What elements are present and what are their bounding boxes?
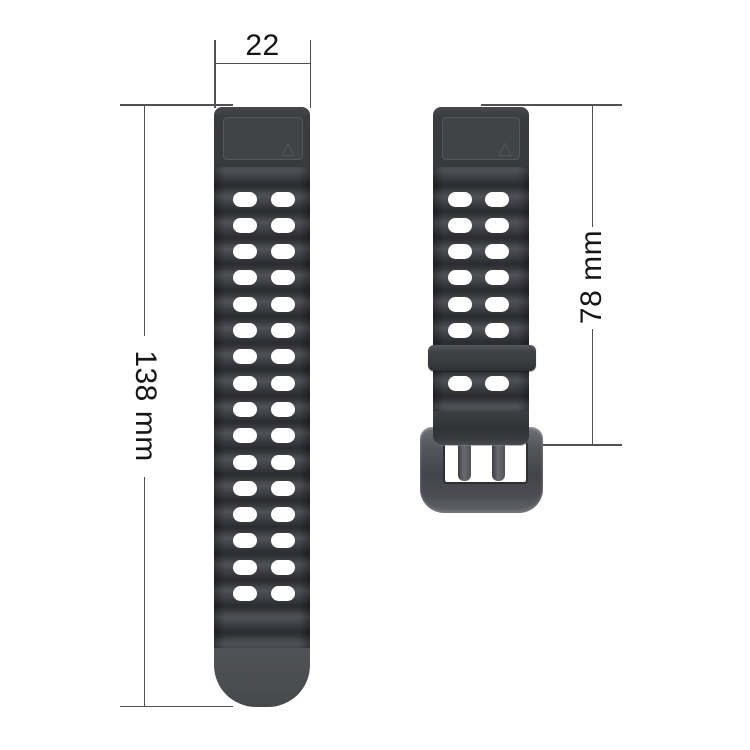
width-extension-line-left xyxy=(214,40,216,108)
strap-hole xyxy=(271,270,295,285)
strap-hole xyxy=(233,376,257,391)
strap-hole xyxy=(448,244,472,259)
right-strap-buckle-fold xyxy=(433,411,529,445)
strap-hole xyxy=(233,455,257,470)
strap-hole xyxy=(233,402,257,417)
right-length-extension-line-top xyxy=(481,104,622,106)
keeper-loop xyxy=(428,345,536,371)
right-length-dimension-line-lower xyxy=(592,329,594,445)
left-length-extension-line-top xyxy=(120,104,233,106)
strap-hole xyxy=(448,218,472,233)
product-dimension-diagram: 22 138 mm 78 mm △ △ xyxy=(0,0,750,750)
left-strap-quick-release-plate: △ xyxy=(223,117,303,160)
right-strap-band xyxy=(433,167,529,418)
strap-hole xyxy=(448,323,472,338)
strap-hole xyxy=(485,376,509,391)
strap-hole xyxy=(271,376,295,391)
strap-hole xyxy=(233,218,257,233)
left-strap-tip xyxy=(214,648,310,707)
strap-hole xyxy=(233,533,257,548)
strap-hole xyxy=(448,192,472,207)
left-length-dimension-line-upper xyxy=(144,104,146,336)
strap-hole xyxy=(271,192,295,207)
left-length-dimension-label: 138 mm xyxy=(130,350,160,461)
strap-hole xyxy=(233,586,257,601)
strap-hole xyxy=(485,192,509,207)
strap-hole xyxy=(448,297,472,312)
strap-hole xyxy=(233,481,257,496)
strap-hole xyxy=(233,560,257,575)
strap-hole xyxy=(233,323,257,338)
strap-hole xyxy=(485,244,509,259)
strap-hole xyxy=(271,297,295,312)
right-length-dimension-label: 78 mm xyxy=(577,230,607,324)
strap-hole xyxy=(233,192,257,207)
strap-hole xyxy=(271,244,295,259)
strap-hole xyxy=(271,323,295,338)
width-dimension-label: 22 xyxy=(214,31,311,61)
right-length-dimension-line-upper xyxy=(592,104,594,227)
left-strap: △ xyxy=(214,107,310,707)
strap-hole xyxy=(271,455,295,470)
strap-hole xyxy=(448,270,472,285)
left-length-dimension-line-lower xyxy=(144,477,146,707)
left-strap-lug-end: △ xyxy=(214,107,310,167)
triangle-mark-icon: △ xyxy=(498,139,512,157)
strap-hole xyxy=(233,270,257,285)
strap-hole xyxy=(271,533,295,548)
strap-hole xyxy=(233,244,257,259)
strap-hole xyxy=(271,586,295,601)
strap-hole xyxy=(233,297,257,312)
strap-hole xyxy=(271,560,295,575)
strap-hole xyxy=(271,349,295,364)
right-strap-quick-release-plate: △ xyxy=(442,117,520,160)
strap-hole xyxy=(233,428,257,443)
triangle-mark-icon: △ xyxy=(281,139,295,157)
width-extension-line-right xyxy=(310,40,312,108)
buckle-window xyxy=(443,441,528,484)
strap-hole xyxy=(271,218,295,233)
right-strap-lug-end: △ xyxy=(433,107,529,167)
strap-hole xyxy=(485,297,509,312)
right-strap: △ xyxy=(420,107,543,513)
strap-hole xyxy=(233,507,257,522)
strap-hole xyxy=(233,349,257,364)
width-dimension-line xyxy=(214,63,311,65)
left-strap-band xyxy=(214,167,310,648)
strap-hole xyxy=(485,270,509,285)
strap-hole xyxy=(271,507,295,522)
strap-hole xyxy=(271,481,295,496)
strap-hole xyxy=(271,428,295,443)
strap-hole xyxy=(448,376,472,391)
strap-hole xyxy=(271,402,295,417)
strap-hole xyxy=(485,218,509,233)
strap-hole xyxy=(485,323,509,338)
